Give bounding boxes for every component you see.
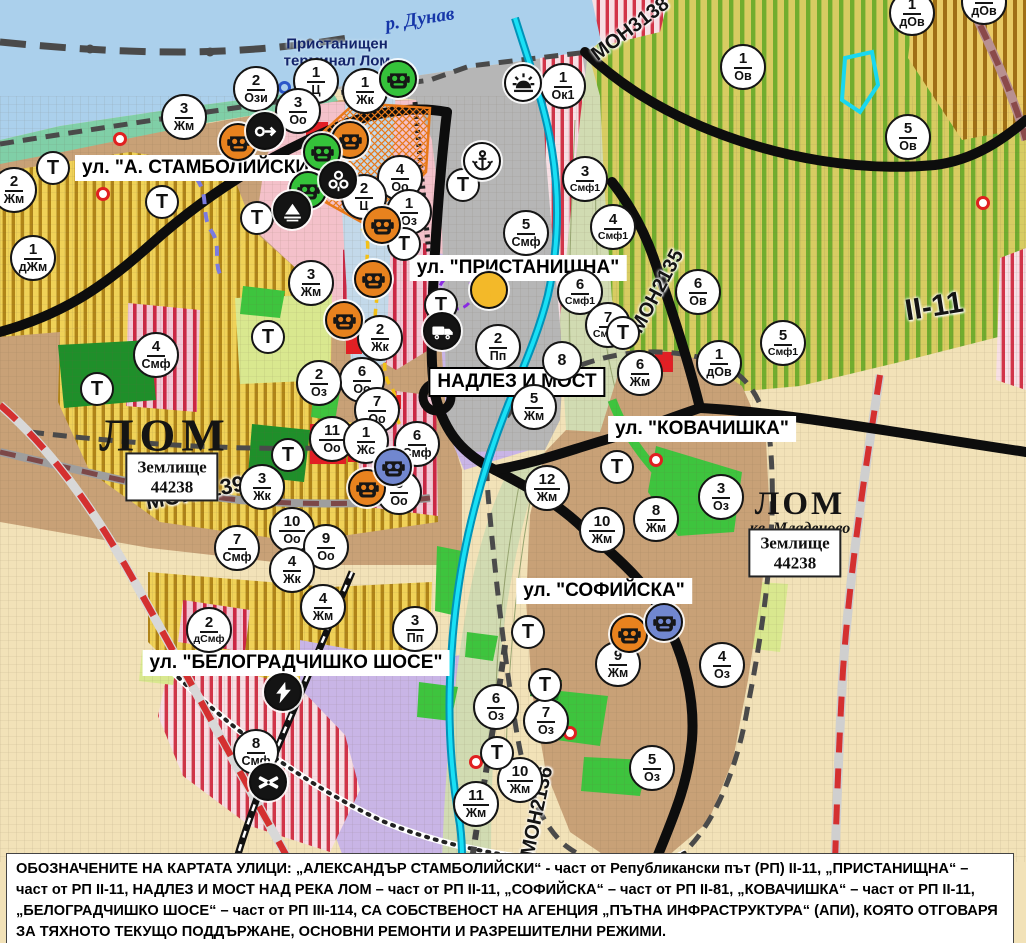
- street-label: ул. "А. СТАМБОЛИЙСКИ": [75, 155, 325, 181]
- clover-icon: [319, 161, 357, 199]
- mask-icon: [374, 448, 412, 486]
- transport-marker: Т: [480, 736, 514, 770]
- zone-marker: 4Смф1: [590, 204, 636, 250]
- zone-marker: 4Оз: [699, 642, 745, 688]
- transport-marker: Т: [80, 372, 114, 406]
- anchor-icon: [463, 142, 501, 180]
- zone-marker: 3Оз: [698, 474, 744, 520]
- transport-marker: Т: [606, 316, 640, 350]
- zone-marker: 6Ов: [675, 269, 721, 315]
- zone-marker: 6Оз: [473, 684, 519, 730]
- land-unit-box: Землище 44238: [748, 528, 841, 577]
- zone-marker: 7Оз: [523, 698, 569, 744]
- zone-marker: 4Смф: [133, 332, 179, 378]
- area-label: ЛОМ: [755, 486, 845, 522]
- street-label: ул. "КОВАЧИШКА": [608, 416, 796, 442]
- lightning-icon: [264, 673, 302, 711]
- red-dot-marker: [976, 196, 990, 210]
- red-dot-marker: [96, 187, 110, 201]
- exclamation-icon: !: [470, 271, 508, 309]
- transport-marker: Т: [528, 668, 562, 702]
- zone-marker: 5Жм: [511, 384, 557, 430]
- zone-marker: 2дСмф: [186, 607, 232, 653]
- red-dot-marker: [113, 132, 127, 146]
- zone-marker: 2Пп: [475, 324, 521, 370]
- zone-marker: 3Жм: [288, 260, 334, 306]
- mask-icon: [354, 260, 392, 298]
- zone-marker: 5Смф: [503, 210, 549, 256]
- zone-marker: 2Оз: [296, 360, 342, 406]
- red-dot-marker: [649, 453, 663, 467]
- mask-icon: [645, 603, 683, 641]
- zone-marker: 6Жм: [617, 350, 663, 396]
- zone-marker: 5Смф1: [760, 320, 806, 366]
- zone-marker: 3Жк: [239, 464, 285, 510]
- zone-marker: 2Ози: [233, 66, 279, 112]
- mask-icon: [610, 615, 648, 653]
- zone-marker: 11Жм: [453, 781, 499, 827]
- mask-icon: [363, 206, 401, 244]
- tunnel-icon: [273, 191, 311, 229]
- transport-marker: Т: [240, 201, 274, 235]
- zone-marker: 3Пп: [392, 606, 438, 652]
- mask-icon: [325, 301, 363, 339]
- mask-icon: [379, 60, 417, 98]
- zone-marker: 5Ов: [885, 114, 931, 160]
- transport-marker: Т: [145, 185, 179, 219]
- zone-marker: 12Жм: [524, 465, 570, 511]
- zone-marker: 8Жм: [633, 496, 679, 542]
- footer-note: ОБОЗНАЧЕНИТЕ НА КАРТАТА УЛИЦИ: „АЛЕКСАНД…: [6, 853, 1014, 943]
- rail-crossing-icon: [249, 763, 287, 801]
- transport-marker: Т: [511, 615, 545, 649]
- zone-marker: 1дОв: [696, 340, 742, 386]
- zone-marker: 4Жк: [269, 547, 315, 593]
- transport-marker: Т: [271, 438, 305, 472]
- transport-marker: Т: [36, 151, 70, 185]
- arrow-icon: [246, 112, 284, 150]
- zone-marker: 1дЖм: [10, 235, 56, 281]
- zoning-map-canvas: р. Дунав Пристанищен терминал Лом 2Ози1Ц…: [0, 0, 1026, 943]
- zone-marker: 1Ов: [720, 44, 766, 90]
- zone-marker: 8: [542, 341, 582, 381]
- transport-marker: Т: [600, 450, 634, 484]
- zone-marker: 7Смф: [214, 525, 260, 571]
- zone-marker: 2Жк: [357, 315, 403, 361]
- transport-marker: Т: [251, 320, 285, 354]
- zone-marker: 4Жм: [300, 584, 346, 630]
- street-label: ул. "БЕЛОГРАДЧИШКО ШОСЕ": [143, 650, 450, 676]
- truck-icon: [423, 312, 461, 350]
- zone-marker: 1Ок1: [540, 63, 586, 109]
- zone-marker: 10Жм: [579, 507, 625, 553]
- zone-marker: 3Жм: [161, 94, 207, 140]
- sun-icon: [504, 64, 542, 102]
- land-unit-box: Землище 44238: [125, 452, 218, 501]
- zone-marker: 3Смф1: [562, 156, 608, 202]
- zone-marker: 5Оз: [629, 745, 675, 791]
- street-label: ул. "СОФИЙСКА": [516, 578, 692, 604]
